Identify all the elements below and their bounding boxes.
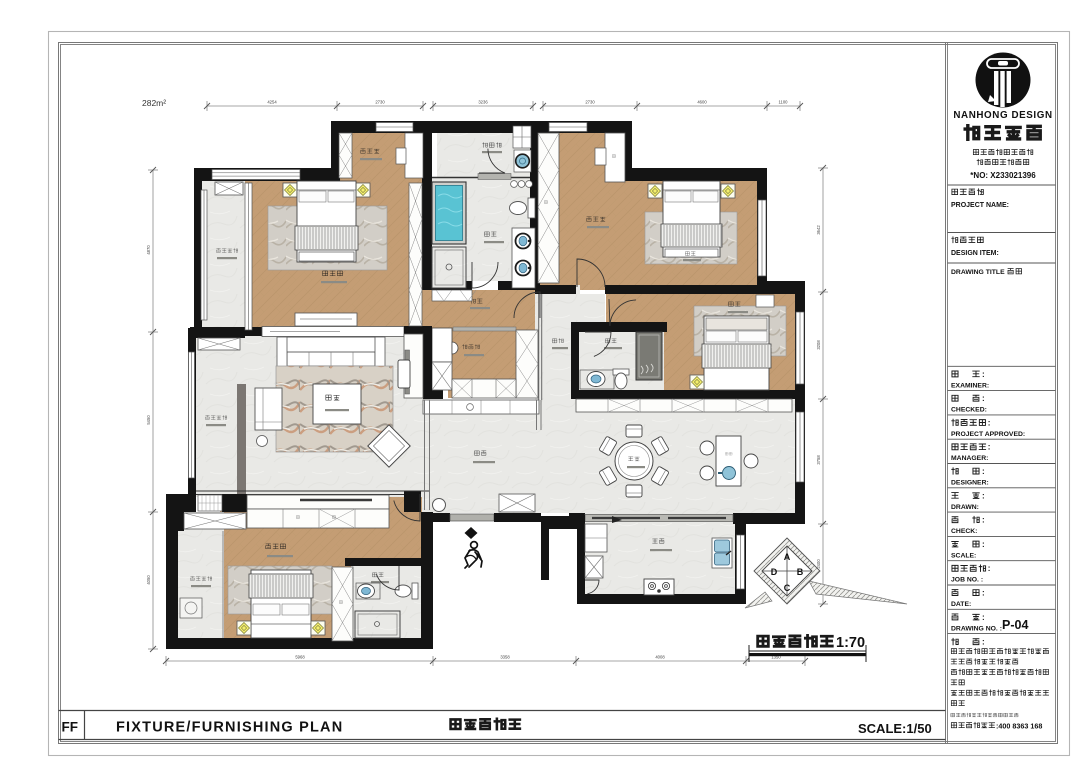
svg-text:SCALE:1/50: SCALE:1/50 bbox=[858, 721, 932, 736]
svg-text:DESIGNER:: DESIGNER: bbox=[951, 480, 989, 487]
svg-text:CHECKED:: CHECKED: bbox=[951, 407, 987, 414]
svg-text:DRAWING TITLE: DRAWING TITLE bbox=[951, 269, 1005, 276]
svg-text:5450: 5450 bbox=[146, 415, 151, 425]
svg-text:C: C bbox=[784, 583, 791, 593]
svg-text::: : bbox=[982, 491, 985, 500]
svg-text::: : bbox=[988, 564, 991, 573]
svg-text:D: D bbox=[771, 567, 778, 577]
svg-text:DRAWING NO. :: DRAWING NO. : bbox=[951, 625, 1002, 632]
svg-text::: : bbox=[979, 236, 982, 245]
svg-text::: : bbox=[982, 540, 985, 549]
svg-text:DRAWN:: DRAWN: bbox=[951, 504, 979, 511]
svg-text:MANAGER:: MANAGER: bbox=[951, 455, 988, 462]
svg-text::: : bbox=[982, 589, 985, 598]
svg-text:3358: 3358 bbox=[500, 655, 510, 660]
svg-text:5968: 5968 bbox=[295, 655, 305, 660]
svg-text::: : bbox=[988, 443, 991, 452]
svg-text::: : bbox=[982, 370, 985, 379]
svg-text:282m²: 282m² bbox=[142, 98, 166, 108]
svg-text:FF: FF bbox=[62, 720, 79, 735]
svg-text:4050: 4050 bbox=[146, 575, 151, 585]
svg-text:2730: 2730 bbox=[375, 100, 385, 105]
svg-text::: : bbox=[982, 516, 985, 525]
svg-text::: : bbox=[982, 467, 985, 476]
svg-text:2730: 2730 bbox=[585, 100, 595, 105]
svg-text:PROJECT APPROVED:: PROJECT APPROVED: bbox=[951, 431, 1025, 438]
svg-text:FIXTURE/FURNISHING PLAN: FIXTURE/FURNISHING PLAN bbox=[116, 720, 343, 736]
svg-text:3208: 3208 bbox=[816, 340, 821, 350]
svg-text::: : bbox=[982, 394, 985, 403]
svg-text::400 8363 168: :400 8363 168 bbox=[996, 722, 1042, 731]
svg-text:B: B bbox=[797, 567, 804, 577]
svg-text:1:70: 1:70 bbox=[836, 635, 865, 651]
svg-text:*NO: X233021396: *NO: X233021396 bbox=[970, 171, 1036, 180]
svg-text:PROJECT NAME:: PROJECT NAME: bbox=[951, 202, 1009, 209]
svg-text:EXAMINER:: EXAMINER: bbox=[951, 382, 989, 389]
svg-text::: : bbox=[982, 613, 985, 622]
svg-text:3642: 3642 bbox=[816, 225, 821, 235]
svg-text:P-04: P-04 bbox=[1002, 618, 1028, 632]
svg-text:4254: 4254 bbox=[267, 100, 277, 105]
svg-text:DESIGN ITEM:: DESIGN ITEM: bbox=[951, 250, 999, 257]
svg-text:3758: 3758 bbox=[816, 455, 821, 465]
svg-text:CHECK:: CHECK: bbox=[951, 528, 977, 535]
svg-text:SCALE:: SCALE: bbox=[951, 552, 976, 559]
svg-text:4600: 4600 bbox=[697, 100, 707, 105]
svg-text:A: A bbox=[784, 552, 791, 562]
svg-text:1100: 1100 bbox=[778, 100, 788, 105]
svg-text:NANHONG DESIGN: NANHONG DESIGN bbox=[953, 110, 1052, 121]
svg-text:JOB NO. :: JOB NO. : bbox=[951, 577, 983, 584]
svg-text::: : bbox=[979, 188, 982, 197]
svg-text:4008: 4008 bbox=[655, 655, 665, 660]
svg-text::: : bbox=[988, 418, 991, 427]
svg-text:3236: 3236 bbox=[478, 100, 488, 105]
svg-text::: : bbox=[982, 638, 985, 647]
svg-text:DATE:: DATE: bbox=[951, 601, 971, 608]
svg-text:4870: 4870 bbox=[146, 245, 151, 255]
